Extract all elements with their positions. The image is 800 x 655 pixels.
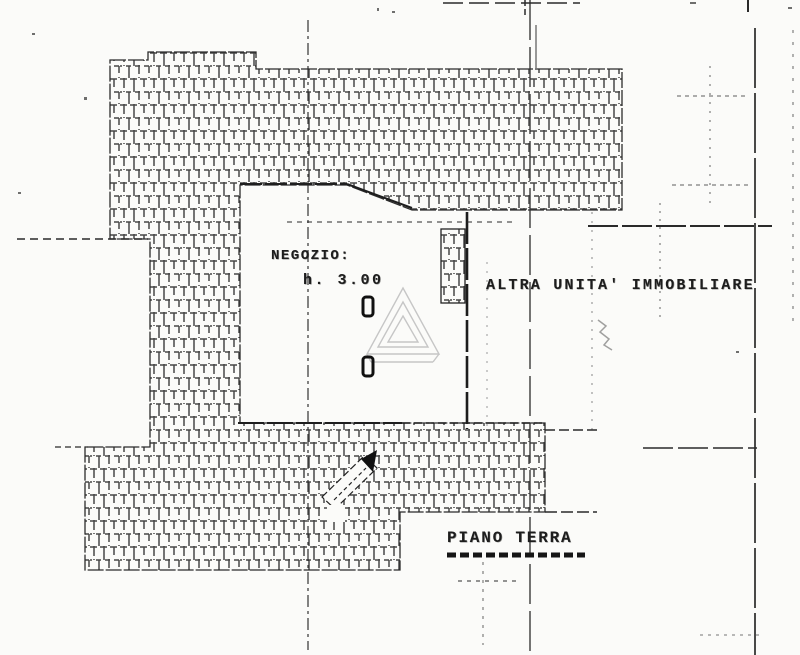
scanned-floorplan-page: NEGOZIO: h. 3.00 ALTRA UNITA' IMMOBILIAR… — [0, 0, 800, 655]
watermark-triangle-icon — [367, 288, 439, 362]
floor-label: PIANO TERRA — [447, 529, 572, 547]
door-jamb-marks — [363, 297, 373, 376]
outer-wall-hatch — [85, 52, 622, 570]
adjacent-unit-label: ALTRA UNITA' IMMOBILIARE — [486, 277, 755, 294]
floor-label-underline — [447, 555, 585, 581]
partition-wall-hatch — [441, 212, 487, 429]
room-height-label: h. 3.00 — [303, 272, 384, 289]
pencil-scribble — [598, 320, 612, 350]
floorplan-drawing — [0, 0, 800, 655]
room-label: NEGOZIO: — [271, 248, 350, 264]
